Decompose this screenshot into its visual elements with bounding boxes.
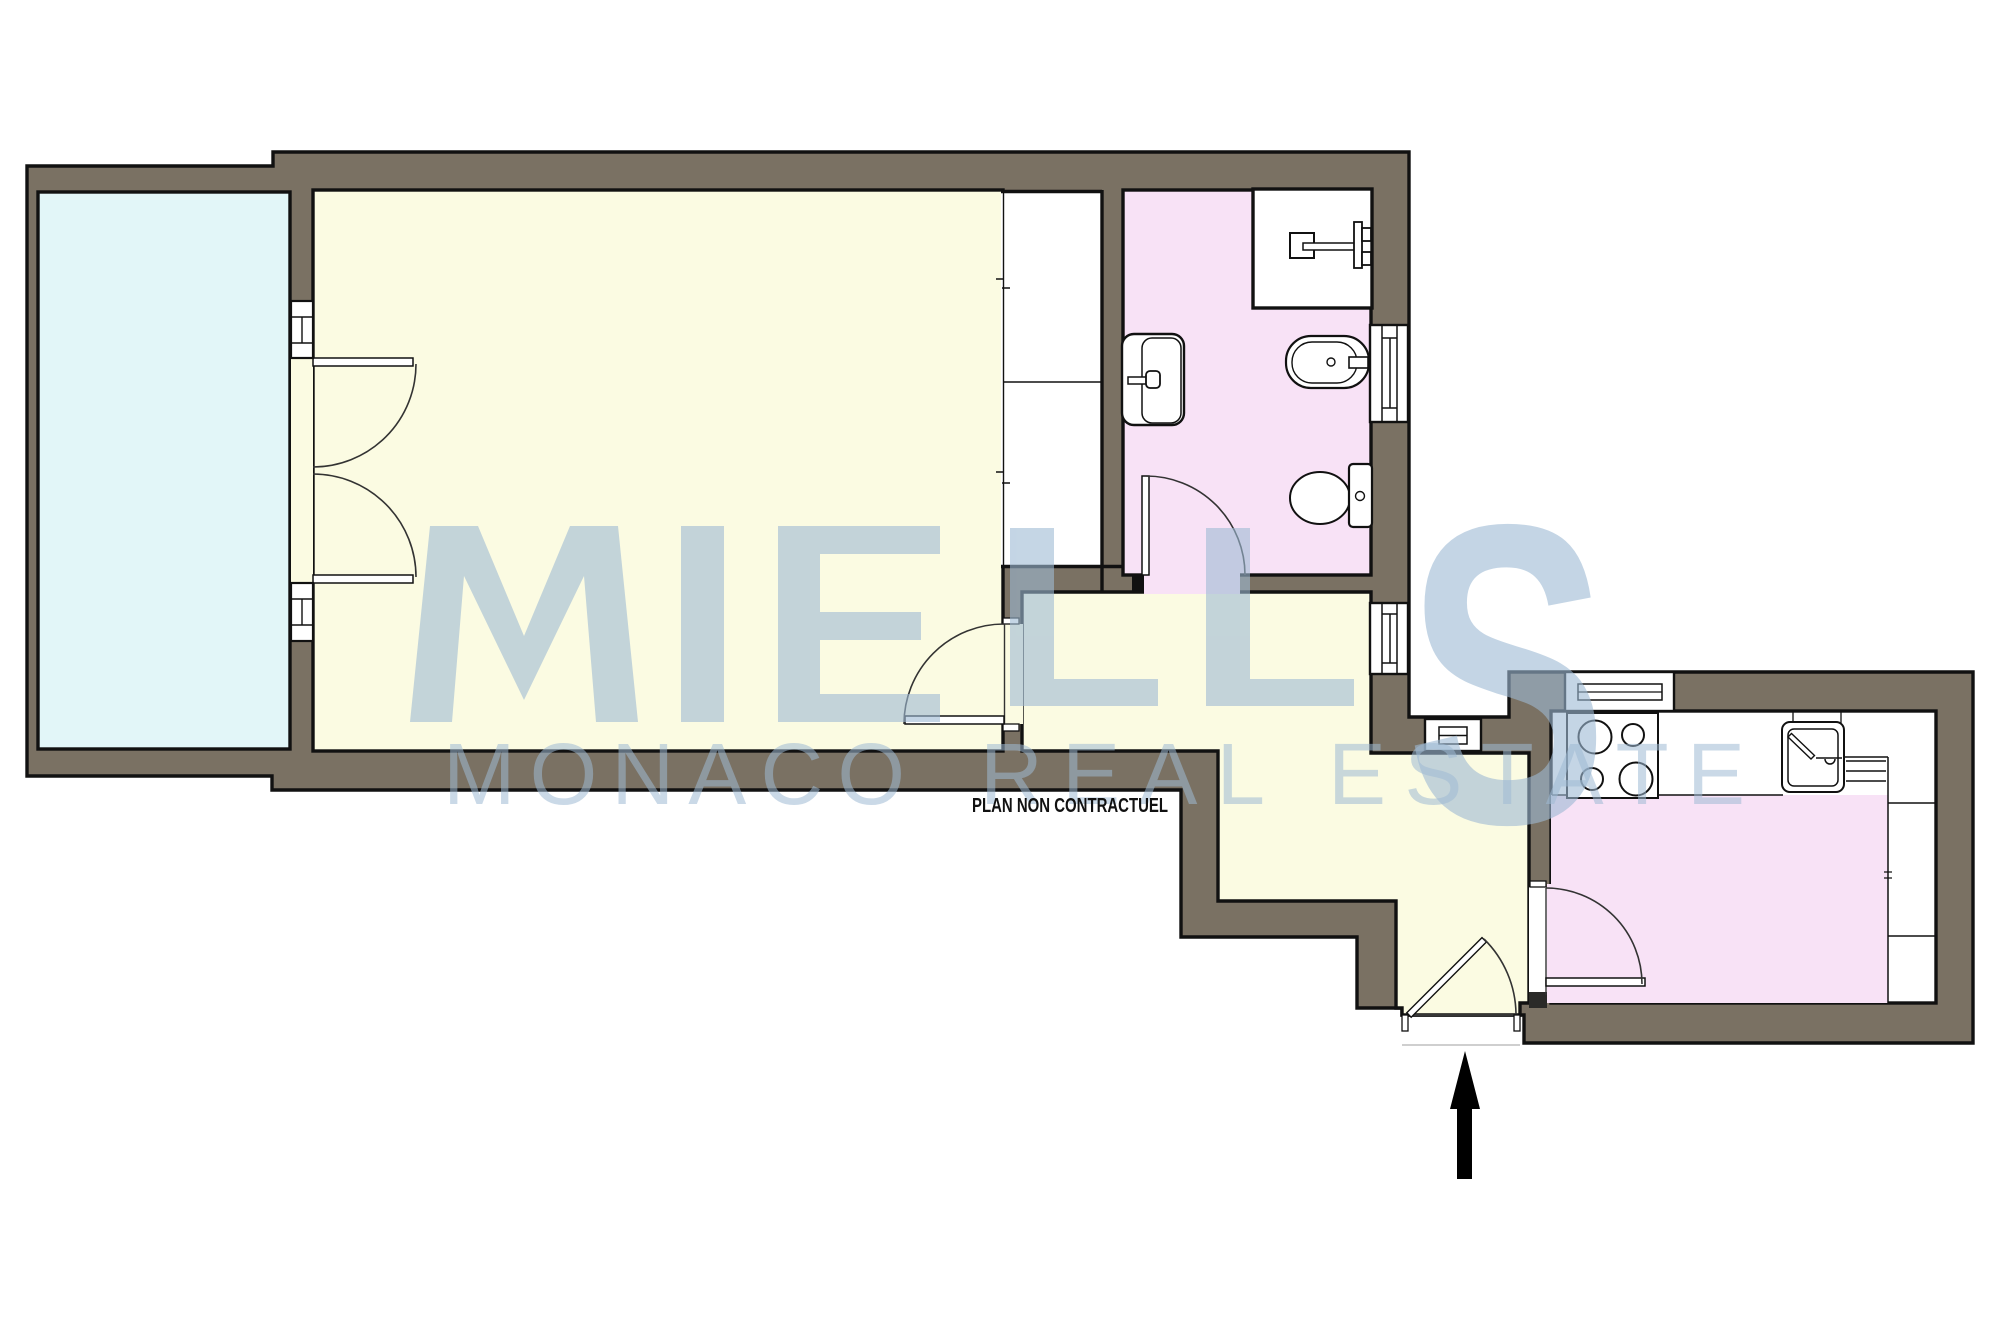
svg-text:PLAN NON CONTRACTUEL: PLAN NON CONTRACTUEL — [972, 795, 1168, 817]
svg-text:S: S — [1406, 436, 1608, 913]
